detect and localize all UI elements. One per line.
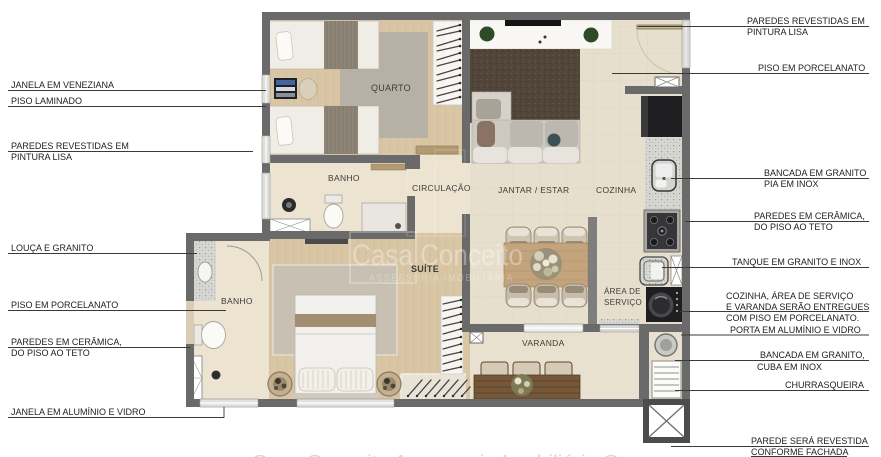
svg-text:COZINHA: COZINHA [596, 185, 636, 195]
svg-text:QUARTO: QUARTO [371, 83, 411, 93]
svg-text:Casa Conceito Assessoria Imobi: Casa Conceito Assessoria Imobiliária Cas… [252, 453, 652, 457]
svg-text:SERVIÇO: SERVIÇO [604, 298, 642, 307]
svg-text:ÁREA DE: ÁREA DE [604, 287, 641, 296]
svg-text:ASSESSORIA IMOBILIÁRIA: ASSESSORIA IMOBILIÁRIA [369, 271, 514, 284]
svg-text:E VARANDA SERÃO ENTREGUES: E VARANDA SERÃO ENTREGUES [726, 302, 869, 312]
svg-text:COM PISO EM PORCELANATO.: COM PISO EM PORCELANATO. [726, 313, 859, 323]
svg-text:LOUÇA E GRANITO: LOUÇA E GRANITO [11, 243, 93, 253]
svg-text:CONFORME FACHADA: CONFORME FACHADA [751, 447, 849, 457]
svg-text:BANCADA EM GRANITO,: BANCADA EM GRANITO, [760, 350, 865, 360]
svg-text:CHURRASQUEIRA: CHURRASQUEIRA [785, 380, 864, 390]
svg-text:JANELA EM VENEZIANA: JANELA EM VENEZIANA [11, 80, 114, 90]
svg-text:CIRCULAÇÃO: CIRCULAÇÃO [412, 183, 471, 193]
svg-text:PAREDES REVESTIDAS EM: PAREDES REVESTIDAS EM [11, 141, 129, 151]
svg-text:VARANDA: VARANDA [522, 338, 565, 348]
svg-text:PIA EM INOX: PIA EM INOX [764, 179, 819, 189]
svg-text:PINTURA LISA: PINTURA LISA [747, 27, 808, 37]
svg-text:PISO EM PORCELANATO: PISO EM PORCELANATO [11, 300, 118, 310]
svg-text:SUÍTE: SUÍTE [411, 264, 439, 274]
svg-text:JANELA EM ALUMÍNIO E VIDRO: JANELA EM ALUMÍNIO E VIDRO [11, 407, 146, 417]
svg-text:PISO LAMINADO: PISO LAMINADO [11, 96, 82, 106]
svg-text:PAREDES EM CERÂMICA,: PAREDES EM CERÂMICA, [11, 337, 122, 347]
svg-text:BANCADA EM GRANITO: BANCADA EM GRANITO [764, 168, 866, 178]
svg-text:DO PISO AO TETO: DO PISO AO TETO [754, 222, 833, 232]
svg-text:BANHO: BANHO [221, 296, 253, 306]
svg-text:BANHO: BANHO [328, 173, 360, 183]
svg-text:PINTURA LISA: PINTURA LISA [11, 152, 72, 162]
svg-text:JANTAR / ESTAR: JANTAR / ESTAR [498, 185, 569, 195]
svg-text:PAREDE SERÁ REVESTIDA: PAREDE SERÁ REVESTIDA [751, 436, 868, 446]
svg-text:PAREDES EM CERÂMICA,: PAREDES EM CERÂMICA, [754, 211, 865, 221]
svg-text:CUBA EM INOX: CUBA EM INOX [757, 362, 822, 372]
svg-text:PORTA EM ALUMÍNIO E VIDRO: PORTA EM ALUMÍNIO E VIDRO [730, 325, 861, 335]
svg-text:TANQUE EM GRANITO E INOX: TANQUE EM GRANITO E INOX [732, 257, 861, 267]
svg-text:PAREDES REVESTIDAS EM: PAREDES REVESTIDAS EM [747, 16, 865, 26]
svg-text:COZINHA, ÁREA DE SERVIÇO: COZINHA, ÁREA DE SERVIÇO [726, 291, 853, 301]
svg-text:PISO EM PORCELANATO: PISO EM PORCELANATO [758, 63, 865, 73]
svg-text:DO PISO AO TETO: DO PISO AO TETO [11, 348, 90, 358]
